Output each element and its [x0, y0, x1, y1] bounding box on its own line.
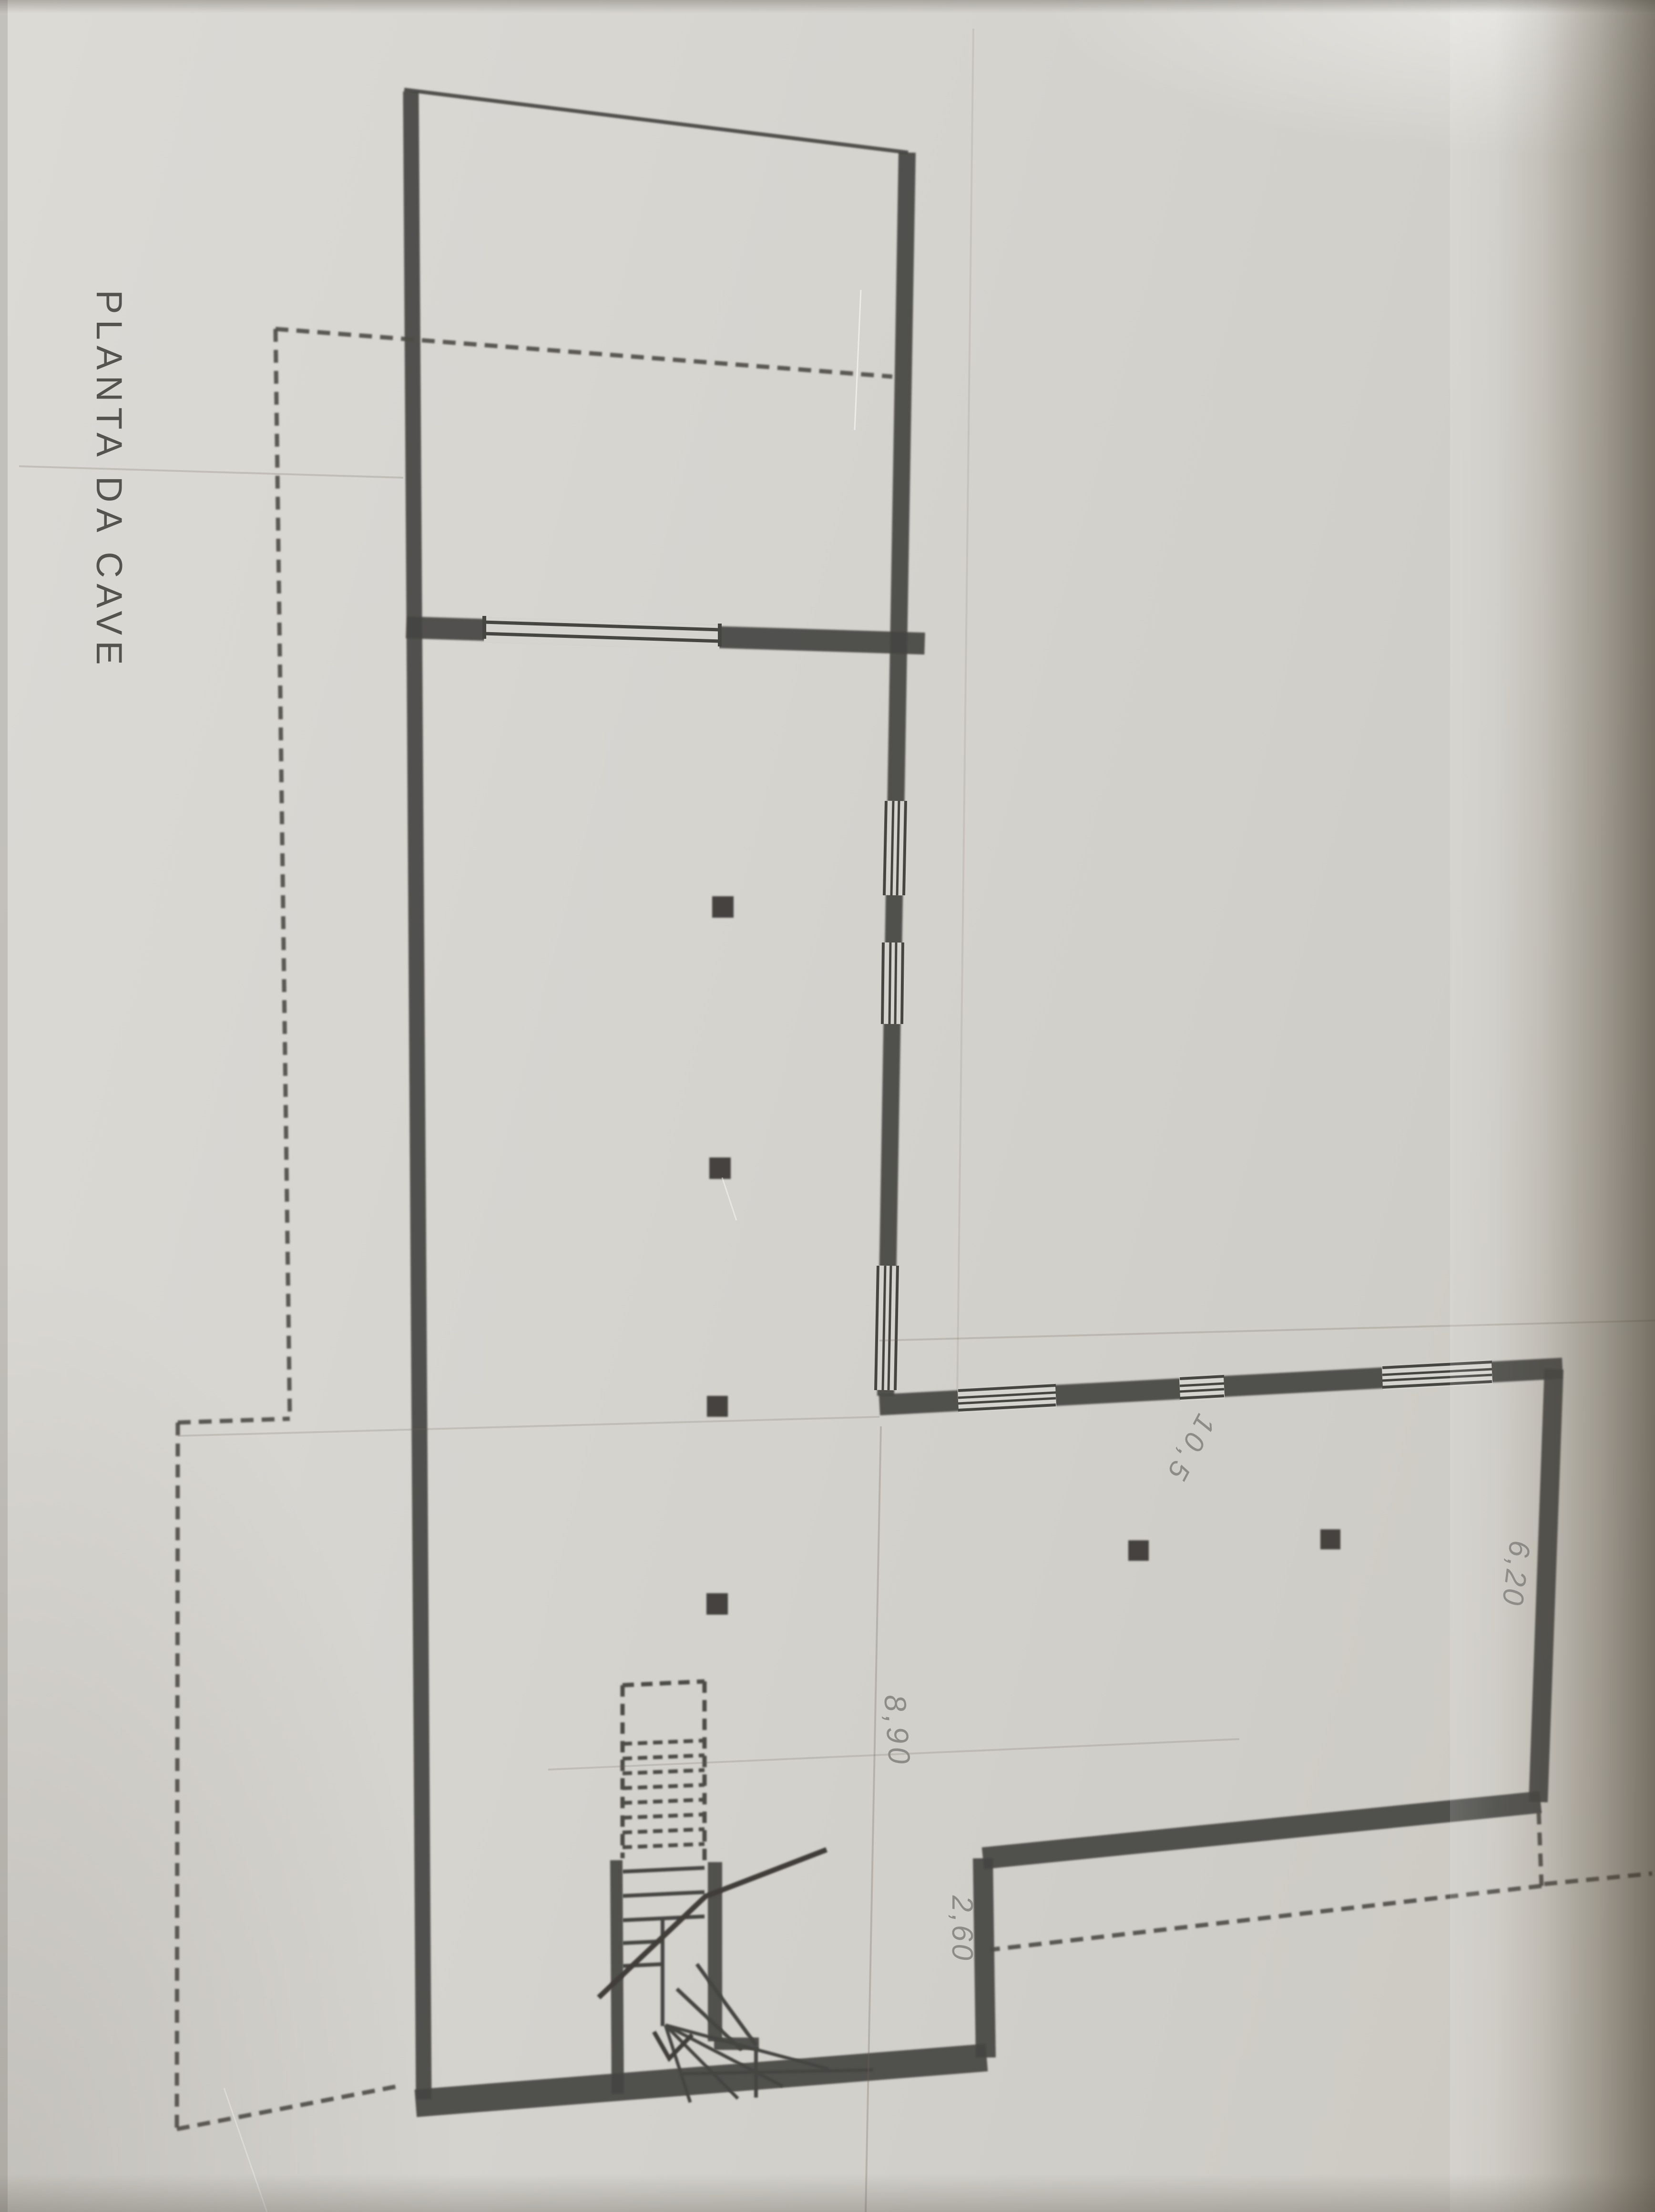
boundary-dashed-lines — [177, 329, 1652, 2129]
structural-columns — [706, 896, 1340, 1615]
floor-plan-drawing — [0, 0, 1655, 2212]
exterior-walls — [404, 90, 1563, 2103]
drawing-title: PLANTA DA CAVE — [88, 290, 130, 671]
dimension-label-2-60: 2,60 — [945, 1895, 979, 1963]
stair-treads-dashed — [623, 1741, 705, 1847]
dimension-label-8-90: 8,90 — [877, 1693, 917, 1768]
window-openings — [484, 616, 1492, 1410]
scanned-paper-sheet: PLANTA DA CAVE 8,90 2,60 10,5 6,20 — [0, 0, 1655, 2212]
paper-creases — [19, 29, 1655, 2212]
